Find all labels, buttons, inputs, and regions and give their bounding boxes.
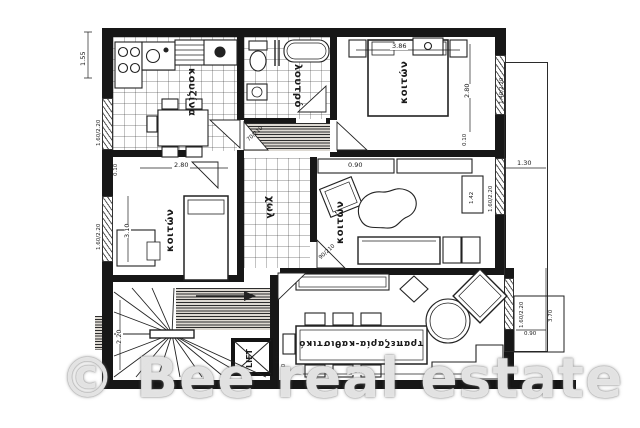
dim-bedroom-left-depth: 3.10: [124, 224, 131, 238]
toilet: [249, 41, 267, 71]
dim-bedroom-top-offset: 0.10: [463, 134, 469, 146]
dim-stairs-width: 2.20: [116, 330, 123, 344]
dim-window-bedroom-left: 1.60/2.20: [97, 224, 103, 250]
floor-plan: κουζίνα λουτρό κοιτών κοιτών κοιτών χωλ …: [0, 0, 640, 428]
furniture-layer: [0, 0, 640, 428]
bath-sink: [247, 84, 267, 100]
nightstand-right: [450, 40, 467, 57]
dim-dining-left: 0.80: [282, 364, 288, 376]
lift-label: LIFT: [246, 349, 254, 368]
dim-window-bedroom-top: 1.40/2.20: [500, 78, 506, 104]
dim-wardrobe: 1.42: [470, 192, 476, 204]
kitchen-counter: [175, 40, 237, 65]
kitchen-table: [147, 99, 208, 157]
staircase: [114, 288, 266, 377]
kidney-desk: [358, 189, 416, 228]
dim-bedroom-top-width: 3.86: [390, 43, 408, 50]
dim-terrace-depth: 3.70: [549, 310, 555, 322]
bed-right: [358, 237, 440, 264]
dim-bedroom-right-shelf: 0.90: [348, 162, 362, 169]
shower-screen: [275, 40, 279, 66]
dim-bedroom-left-width: 2.80: [172, 162, 190, 169]
decor-diamond: [400, 276, 428, 302]
bedroom-right-label: κοιτών: [336, 201, 346, 244]
bedroom-left-label: κοιτών: [166, 209, 176, 252]
dim-balcony-width: 1.30: [516, 160, 532, 167]
dim-window-dining: 1.60/2.20: [520, 302, 526, 328]
kitchen-sink: [142, 42, 175, 70]
dim-lift-width: 1.30: [276, 352, 282, 364]
dim-terrace-width: 0.90: [524, 332, 536, 338]
dresser: [413, 38, 443, 55]
bathtub: [284, 40, 329, 62]
stair-direction-arrow: [196, 291, 256, 301]
dim-dining-width: 3.95: [352, 368, 370, 375]
stove: [115, 42, 142, 88]
nightstand-left: [349, 40, 366, 57]
dim-bedroom-top-depth: 2.80: [464, 84, 471, 98]
dim-window-bedroom-right: 1.60/2.20: [489, 186, 495, 212]
hall-label: χωλ: [264, 196, 274, 219]
kitchen-label: κουζίνα: [186, 68, 196, 116]
sofa-bench: [296, 274, 389, 290]
dim-window-kitchen: 1.60/2.20: [97, 120, 103, 146]
dim-left-height: 1.55: [80, 52, 87, 66]
cabinet-2: [462, 237, 480, 263]
bed-single: [184, 196, 228, 280]
living-dining-label: τραπεζαρία-καθιστικό: [296, 338, 426, 347]
dim-bedroom-left-offset: 0.10: [114, 164, 120, 176]
cabinet-1: [443, 237, 461, 263]
shelf-2: [397, 159, 472, 173]
bathroom-label: λουτρό: [292, 64, 302, 108]
bedroom-top-label: κοιτών: [400, 61, 410, 104]
